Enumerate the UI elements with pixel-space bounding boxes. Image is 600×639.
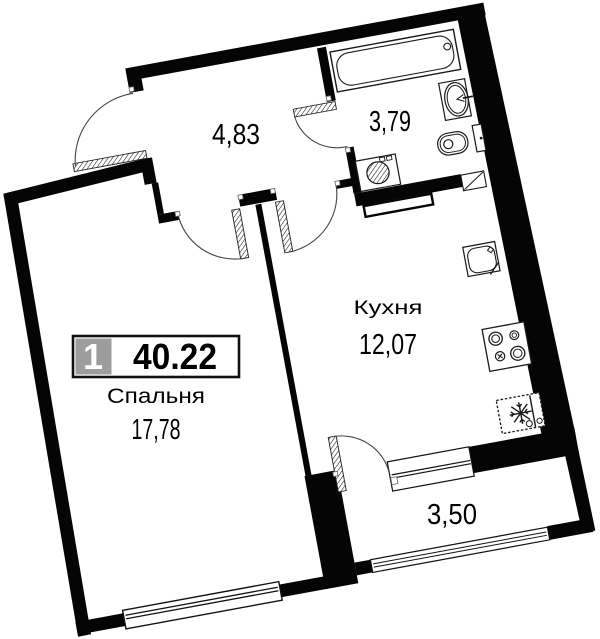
svg-text:40.22: 40.22 [133,336,217,377]
svg-text:3,79: 3,79 [369,106,411,138]
svg-text:Спальня: Спальня [107,384,205,408]
svg-text:1: 1 [83,336,103,377]
svg-text:17,78: 17,78 [132,414,181,446]
svg-text:12,07: 12,07 [359,329,417,361]
svg-text:4,83: 4,83 [212,119,260,151]
svg-text:Кухня: Кухня [354,298,423,319]
svg-text:3,50: 3,50 [427,499,477,531]
